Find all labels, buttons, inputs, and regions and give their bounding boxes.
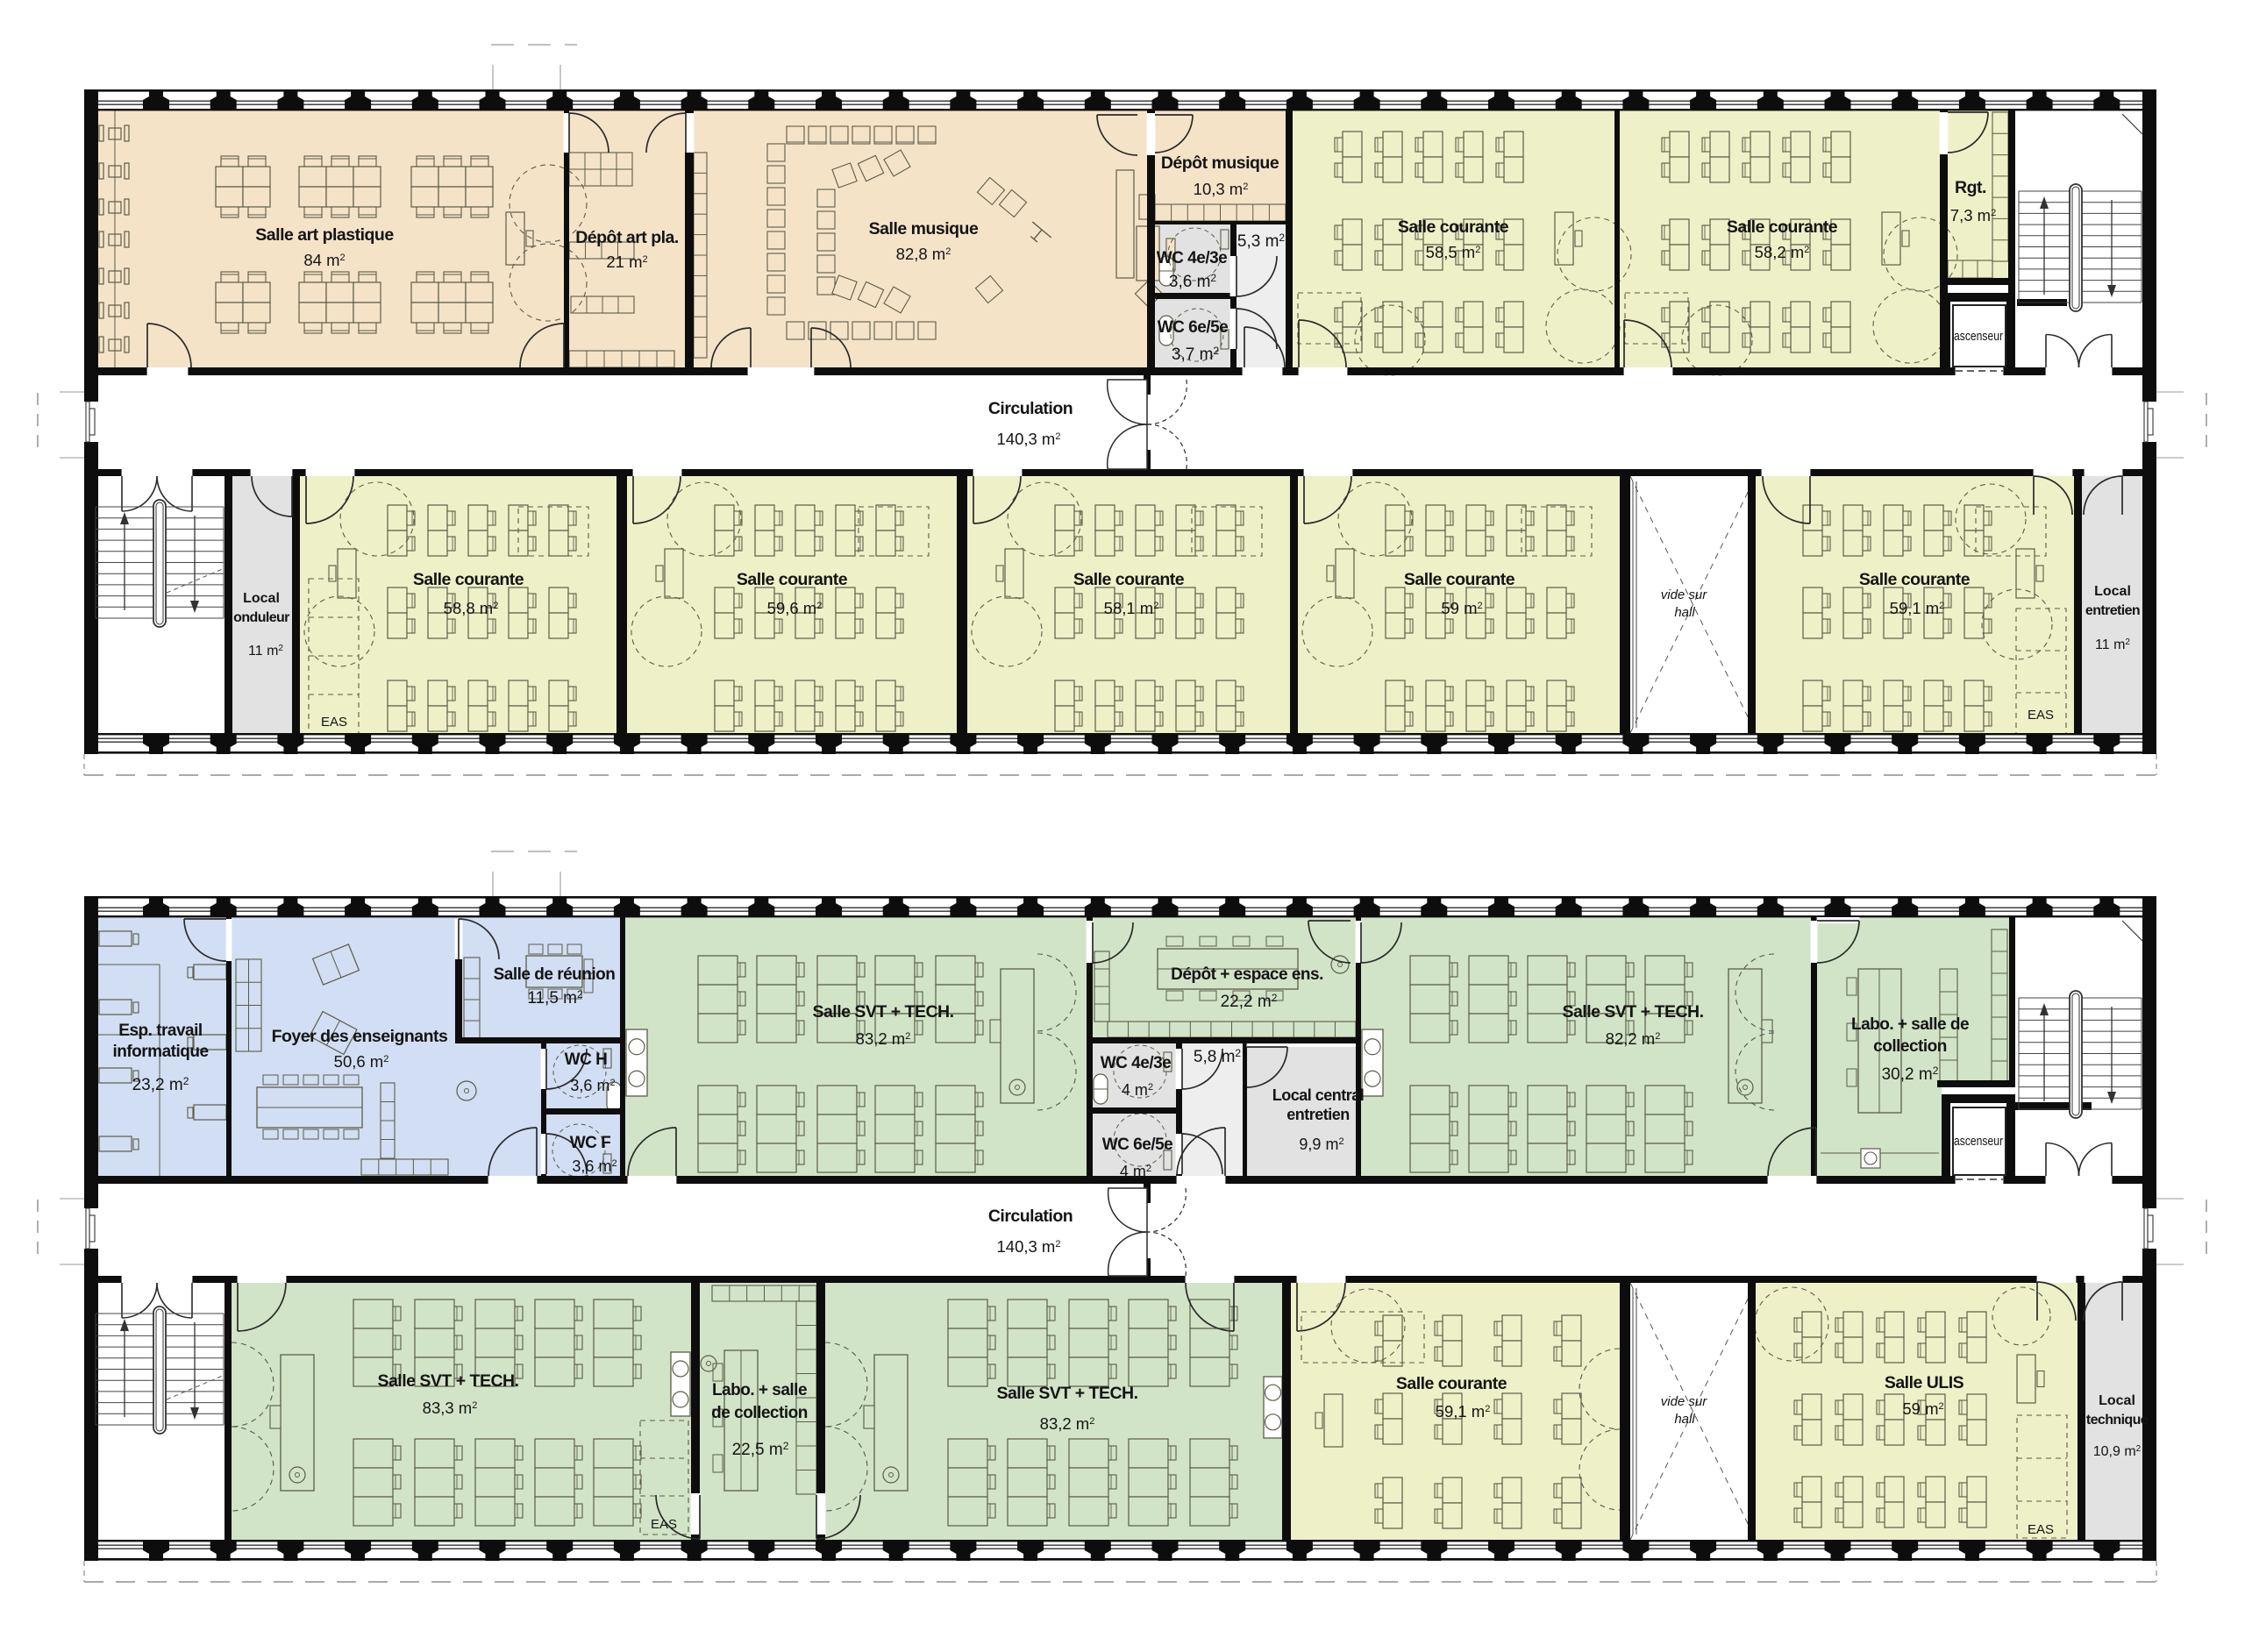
svg-text:Labo. + salle: Labo. + salle: [712, 1381, 807, 1399]
svg-text:58,8 m2: 58,8 m2: [444, 599, 499, 617]
svg-text:EAS: EAS: [2028, 708, 2054, 723]
svg-text:22,2 m2: 22,2 m2: [1221, 992, 1278, 1011]
svg-text:Local: Local: [2099, 1393, 2135, 1408]
svg-text:ascenseur: ascenseur: [1954, 330, 2003, 344]
svg-text:WC 4e/3e: WC 4e/3e: [1157, 249, 1227, 267]
svg-text:59 m2: 59 m2: [1902, 1399, 1943, 1418]
svg-text:WC H: WC H: [565, 1050, 608, 1069]
svg-text:Dépôt + espace ens.: Dépôt + espace ens.: [1171, 965, 1323, 984]
svg-text:WC 6e/5e: WC 6e/5e: [1102, 1136, 1172, 1154]
svg-text:Salle courante: Salle courante: [1727, 217, 1838, 237]
svg-text:Local: Local: [243, 591, 280, 606]
svg-text:11,5 m2: 11,5 m2: [527, 988, 583, 1008]
svg-text:Salle courante: Salle courante: [1073, 570, 1185, 589]
svg-text:WC 6e/5e: WC 6e/5e: [1158, 318, 1228, 337]
svg-text:Salle musique: Salle musique: [869, 219, 979, 239]
svg-text:WC 4e/3e: WC 4e/3e: [1101, 1054, 1171, 1072]
svg-text:59,1 m2: 59,1 m2: [1890, 599, 1945, 617]
svg-text:84 m2: 84 m2: [303, 251, 345, 269]
svg-text:22,5 m2: 22,5 m2: [732, 1440, 789, 1459]
svg-text:Salle de réunion: Salle de réunion: [494, 965, 616, 984]
svg-text:Salle courante: Salle courante: [1404, 570, 1515, 589]
svg-text:informatique: informatique: [112, 1043, 208, 1061]
svg-text:Circulation: Circulation: [988, 1207, 1073, 1226]
svg-text:59,6 m2: 59,6 m2: [767, 599, 823, 617]
svg-text:entretien: entretien: [2085, 603, 2140, 618]
svg-text:58,2 m2: 58,2 m2: [1755, 243, 1810, 261]
svg-text:5,8 m2: 5,8 m2: [1194, 1047, 1242, 1066]
svg-text:hall: hall: [1674, 1412, 1695, 1427]
svg-text:30,2 m2: 30,2 m2: [1882, 1065, 1939, 1084]
svg-text:21 m2: 21 m2: [606, 253, 647, 271]
svg-text:de collection: de collection: [711, 1404, 808, 1422]
svg-text:7,3 m2: 7,3 m2: [1950, 206, 1996, 224]
svg-text:WC F: WC F: [570, 1134, 611, 1152]
svg-text:23,2 m2: 23,2 m2: [132, 1075, 189, 1094]
svg-text:140,3 m2: 140,3 m2: [997, 1237, 1061, 1256]
svg-text:entretien: entretien: [1286, 1106, 1350, 1123]
svg-text:Salle courante: Salle courante: [1398, 217, 1509, 237]
svg-text:ascenseur: ascenseur: [1954, 1135, 2003, 1149]
svg-text:82,2 m2: 82,2 m2: [1606, 1029, 1661, 1048]
svg-text:technique: technique: [2086, 1413, 2149, 1428]
svg-text:vide sur: vide sur: [1661, 587, 1708, 602]
svg-text:vide sur: vide sur: [1661, 1394, 1708, 1409]
svg-text:83,2 m2: 83,2 m2: [856, 1029, 911, 1048]
svg-text:Dépôt musique: Dépôt musique: [1161, 153, 1279, 173]
svg-text:3,6 m2: 3,6 m2: [1169, 272, 1217, 291]
svg-text:11 m2: 11 m2: [2095, 637, 2130, 652]
svg-text:82,8 m2: 82,8 m2: [896, 245, 951, 263]
svg-text:Salle courante: Salle courante: [413, 570, 524, 589]
svg-text:Esp. travail: Esp. travail: [118, 1022, 202, 1040]
svg-text:58,1 m2: 58,1 m2: [1104, 599, 1159, 617]
svg-text:Rgt.: Rgt.: [1955, 178, 1986, 197]
svg-text:Circulation: Circulation: [988, 399, 1073, 418]
svg-text:EAS: EAS: [2028, 1522, 2054, 1537]
svg-text:Salle art plastique: Salle art plastique: [255, 225, 394, 245]
svg-text:Dépôt art pla.: Dépôt art pla.: [575, 228, 679, 247]
svg-text:83,2 m2: 83,2 m2: [1040, 1414, 1095, 1433]
svg-text:140,3 m2: 140,3 m2: [997, 430, 1061, 448]
svg-text:83,3 m2: 83,3 m2: [423, 1399, 478, 1417]
svg-text:3,6 m2: 3,6 m2: [570, 1077, 615, 1094]
svg-text:11 m2: 11 m2: [248, 644, 283, 659]
svg-text:Foyer des enseignants: Foyer des enseignants: [272, 1027, 448, 1046]
svg-text:onduleur: onduleur: [233, 610, 289, 625]
svg-text:Salle SVT + TECH.: Salle SVT + TECH.: [812, 1002, 953, 1022]
svg-text:58,5 m2: 58,5 m2: [1426, 243, 1481, 261]
svg-text:5,3 m2: 5,3 m2: [1237, 231, 1286, 251]
svg-text:Labo. + salle de: Labo. + salle de: [1851, 1015, 1969, 1034]
svg-text:59 m2: 59 m2: [1441, 599, 1482, 617]
svg-text:3,7 m2: 3,7 m2: [1172, 345, 1220, 364]
svg-text:Salle courante: Salle courante: [737, 570, 848, 589]
svg-text:Local central: Local central: [1272, 1086, 1365, 1104]
svg-text:9,9 m2: 9,9 m2: [1299, 1136, 1343, 1153]
svg-text:Salle SVT + TECH.: Salle SVT + TECH.: [377, 1371, 518, 1391]
svg-text:50,6 m2: 50,6 m2: [334, 1052, 389, 1071]
svg-text:hall: hall: [1674, 605, 1695, 620]
svg-text:Salle courante: Salle courante: [1859, 570, 1971, 589]
svg-text:Salle SVT + TECH.: Salle SVT + TECH.: [1562, 1002, 1703, 1022]
svg-text:10,3 m2: 10,3 m2: [1194, 180, 1249, 198]
svg-text:EAS: EAS: [321, 715, 347, 730]
svg-text:3,6 m2: 3,6 m2: [572, 1157, 616, 1175]
svg-text:Local: Local: [2094, 584, 2131, 599]
svg-text:59,1 m2: 59,1 m2: [1436, 1402, 1491, 1421]
svg-text:10,9 m2: 10,9 m2: [2093, 1444, 2142, 1459]
svg-text:collection: collection: [1873, 1037, 1947, 1056]
svg-text:Salle SVT + TECH.: Salle SVT + TECH.: [996, 1384, 1137, 1403]
svg-text:Salle ULIS: Salle ULIS: [1885, 1373, 1964, 1392]
svg-text:Salle courante: Salle courante: [1396, 1374, 1507, 1393]
